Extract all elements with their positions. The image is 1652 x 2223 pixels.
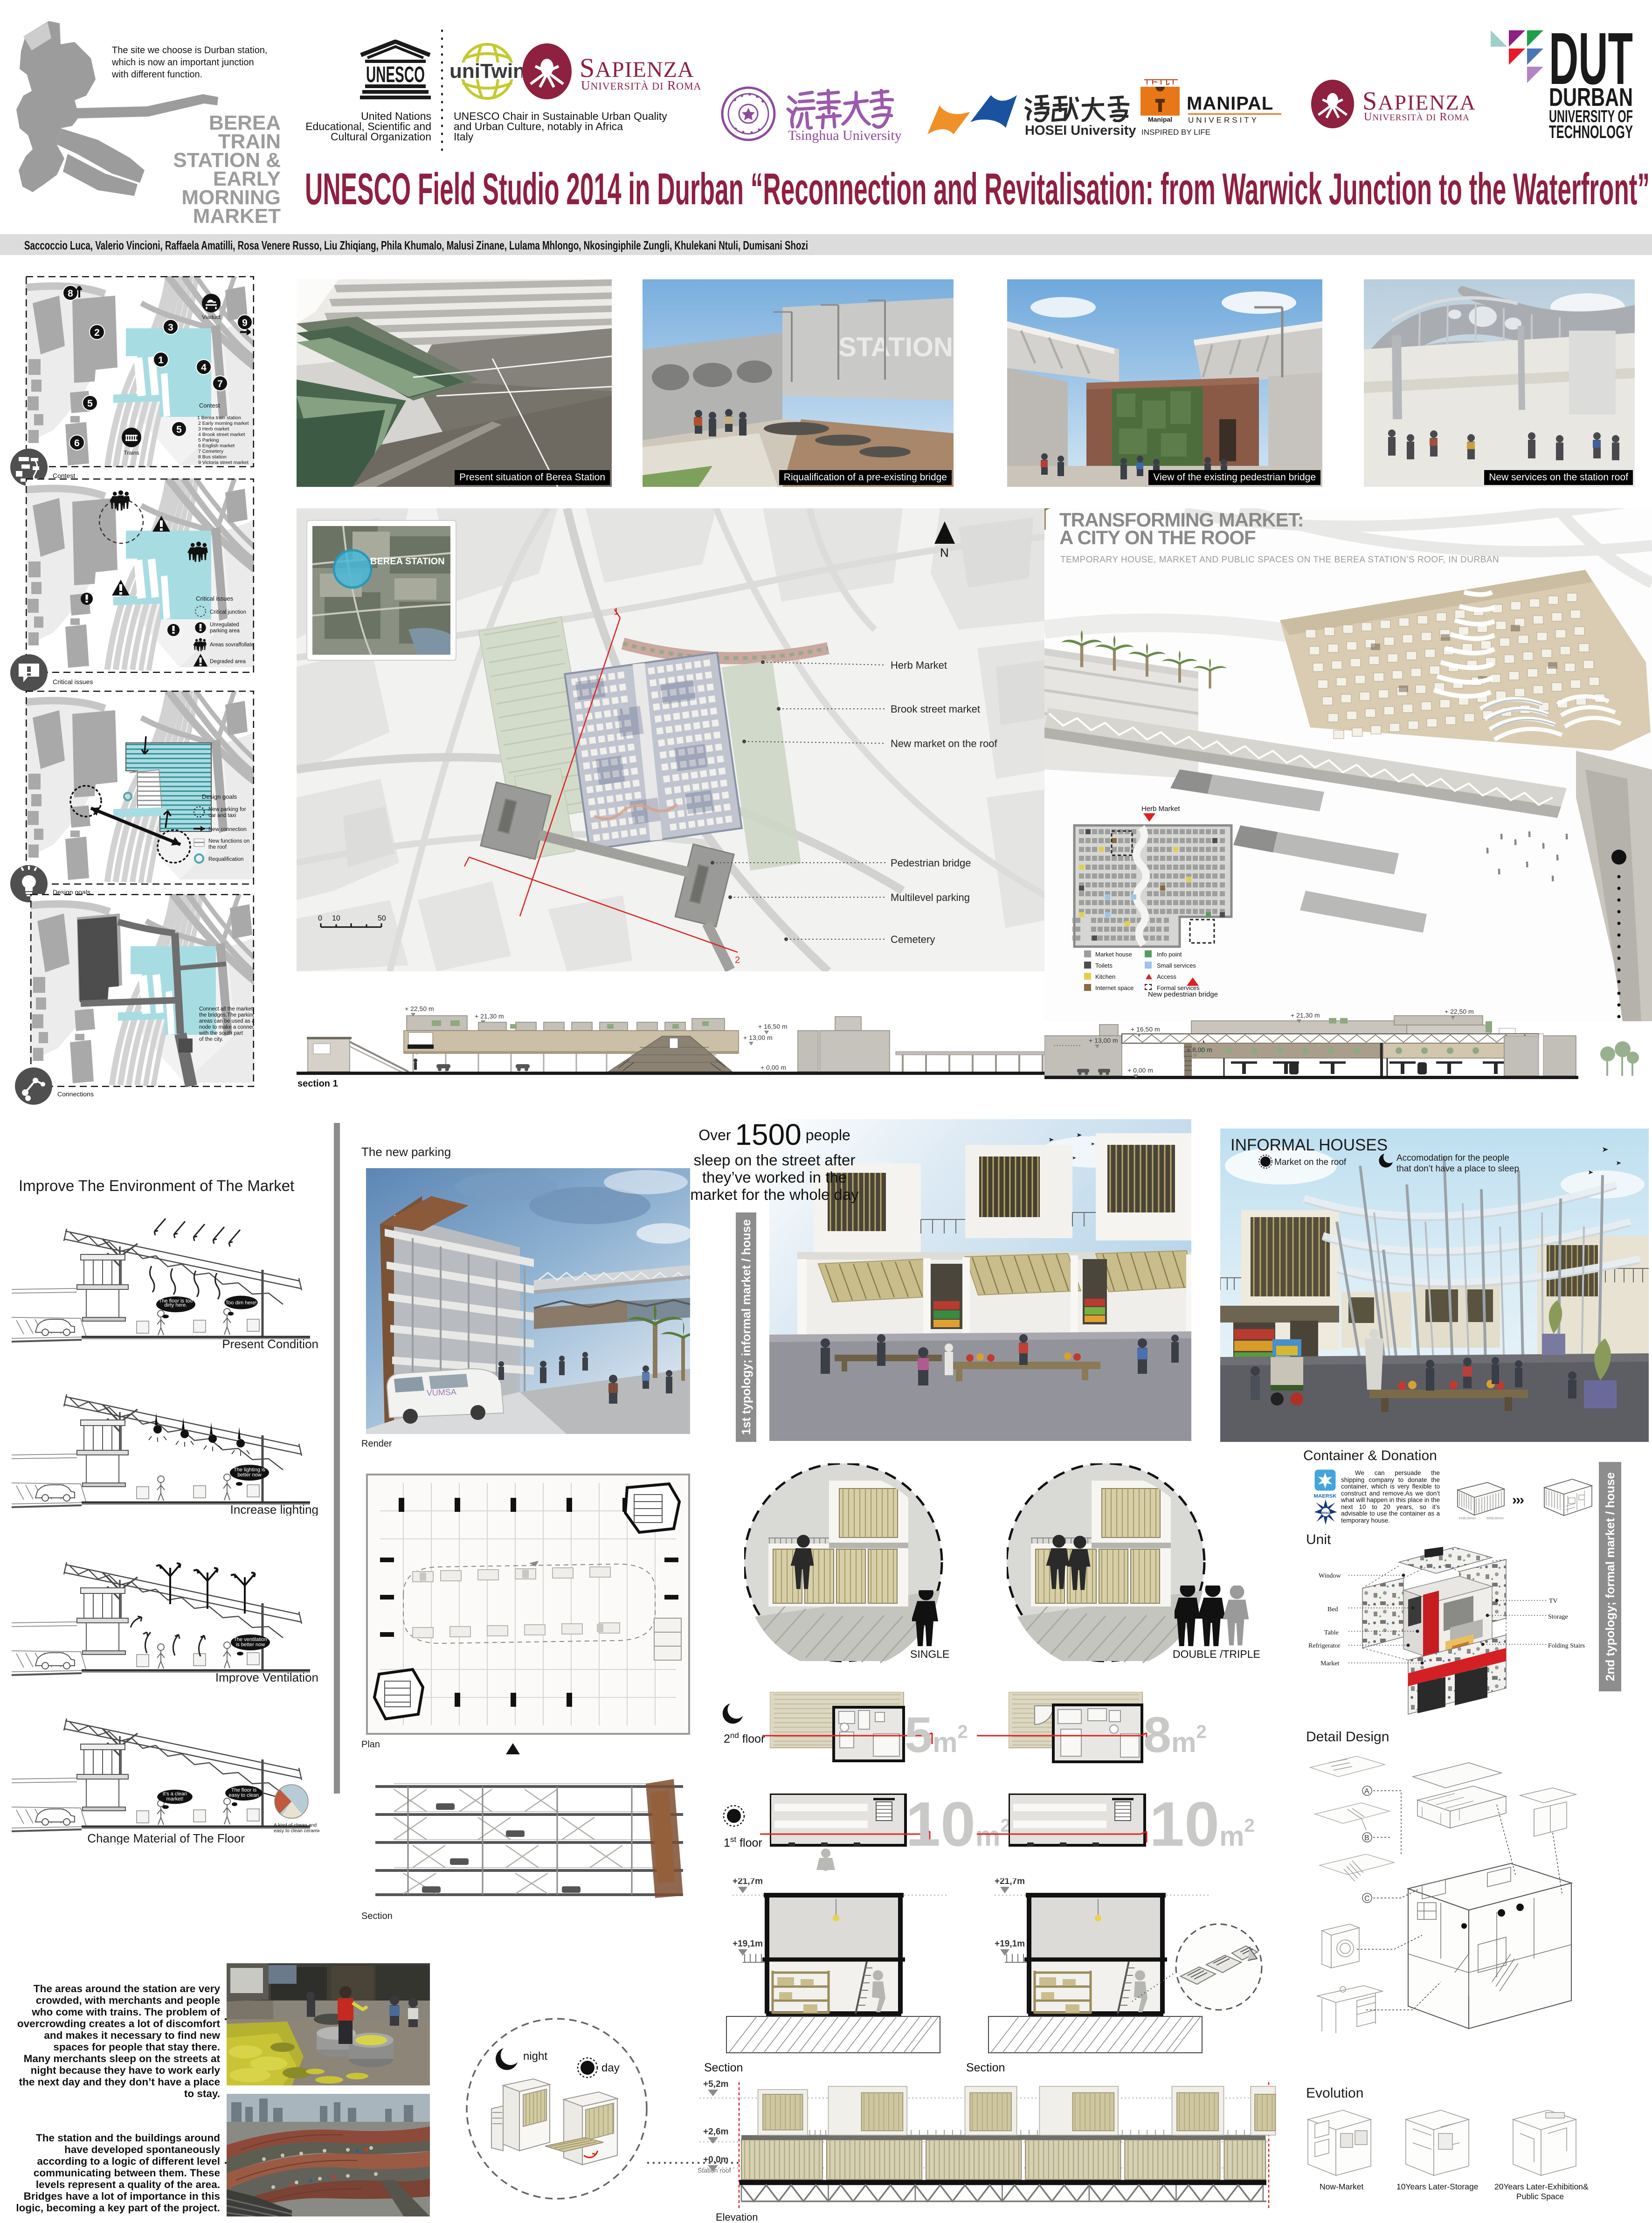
- svg-text:+ 16,50 m: + 16,50 m: [758, 1023, 788, 1030]
- svg-text:section 1: section 1: [297, 1079, 338, 1089]
- svg-text:MAERSK: MAERSK: [1314, 1494, 1336, 1499]
- svg-text:Contest: Contest: [199, 402, 220, 409]
- svg-text:parking area: parking area: [210, 628, 240, 634]
- svg-text:Improve Ventilation: Improve Ventilation: [215, 1670, 318, 1683]
- svg-text:New functions on: New functions on: [208, 838, 249, 844]
- svg-text:3: 3: [168, 322, 173, 333]
- svg-text:Present Condition: Present Condition: [222, 1337, 318, 1350]
- svg-text:+2,6m: +2,6m: [703, 2127, 728, 2137]
- svg-text:9 Victoria street market: 9 Victoria street market: [198, 460, 249, 465]
- svg-text:Degraded area: Degraded area: [210, 659, 246, 665]
- svg-text:2: 2: [735, 955, 740, 965]
- svg-text:BEREA STATION: BEREA STATION: [370, 556, 445, 567]
- svg-text:7 Cemetery: 7 Cemetery: [198, 449, 224, 454]
- svg-text:Trains: Trains: [124, 450, 139, 456]
- svg-text:Multilevel parking: Multilevel parking: [891, 892, 970, 903]
- svg-text:+ 0,00 m: + 0,00 m: [760, 1064, 786, 1071]
- svg-text:market!: market!: [166, 1796, 184, 1802]
- svg-text:easy to clean ceramic.: easy to clean ceramic.: [274, 1828, 319, 1834]
- svg-text:+ 8,00 m: + 8,00 m: [1187, 1046, 1212, 1053]
- svg-text:VUMSA: VUMSA: [426, 1387, 456, 1398]
- svg-text:Unregulated: Unregulated: [210, 622, 239, 628]
- svg-text:New market on the roof: New market on the roof: [891, 738, 998, 749]
- svg-text:UNESCO Field Studio 2014 in Du: UNESCO Field Studio 2014 in Durban “Reco…: [305, 164, 1650, 214]
- svg-text:1: 1: [158, 355, 164, 366]
- svg-text:5: 5: [87, 398, 93, 409]
- svg-text:20Years Later-Exhibition&: 20Years Later-Exhibition&: [1494, 2182, 1589, 2191]
- svg-text:New parking for: New parking for: [208, 807, 246, 812]
- svg-text:50: 50: [378, 914, 386, 922]
- svg-text:5 Parking: 5 Parking: [198, 437, 219, 443]
- svg-text:8: 8: [68, 288, 73, 299]
- svg-text:10Years Later-Storage: 10Years Later-Storage: [1396, 2182, 1478, 2191]
- svg-text:0: 0: [318, 914, 322, 922]
- svg-text:Viaduct: Viaduct: [202, 314, 221, 320]
- svg-text:of the city.: of the city.: [199, 1037, 223, 1042]
- svg-text:10: 10: [332, 914, 340, 922]
- svg-text:Now-Market: Now-Market: [1320, 2182, 1363, 2191]
- svg-text:Cemetery: Cemetery: [891, 934, 935, 945]
- svg-text:3 Herb market: 3 Herb market: [198, 426, 229, 432]
- svg-text:2 Early morning market: 2 Early morning market: [198, 421, 249, 426]
- svg-text:Connect all the markets with: Connect all the markets with: [199, 1006, 254, 1012]
- svg-text:Critical issues: Critical issues: [196, 595, 234, 602]
- svg-text:TECHNOLOGY: TECHNOLOGY: [1549, 122, 1633, 140]
- svg-text:+ 13,00 m: + 13,00 m: [743, 1034, 773, 1041]
- svg-text:Pedestrian bridge: Pedestrian bridge: [891, 857, 971, 869]
- svg-text:2: 2: [94, 327, 100, 338]
- svg-text:Public Space: Public Space: [1516, 2192, 1564, 2201]
- svg-text:the bridges.The parking: the bridges.The parking: [199, 1012, 254, 1018]
- svg-text:node to make a connection: node to make a connection: [199, 1025, 254, 1030]
- svg-text:Manipal: Manipal: [1148, 116, 1172, 123]
- svg-text:with the south part: with the south part: [199, 1031, 243, 1036]
- svg-text:8 Bus station: 8 Bus station: [198, 454, 227, 460]
- svg-text:6 English market: 6 English market: [198, 443, 235, 449]
- svg-text:Increase lighting: Increase lighting: [230, 1503, 318, 1516]
- svg-text:+ 22,50 m: + 22,50 m: [1445, 1008, 1474, 1015]
- svg-text:Saccoccio Luca, Valerio Vincio: Saccoccio Luca, Valerio Vincioni, Raffae…: [24, 238, 808, 252]
- svg-text:Design goals: Design goals: [202, 793, 237, 800]
- svg-text:+ 13,00 m: + 13,00 m: [1089, 1037, 1118, 1044]
- svg-text:the roof: the roof: [208, 845, 227, 850]
- svg-text:+ 21,30 m: + 21,30 m: [475, 1012, 504, 1020]
- svg-text:1 Berea train station: 1 Berea train station: [197, 415, 241, 421]
- svg-text:+5,2m: +5,2m: [703, 2079, 728, 2089]
- svg-text:6058,00mm: 6058,00mm: [1486, 1517, 1504, 1520]
- svg-text:+ 0,00 m: + 0,00 m: [1127, 1066, 1153, 1074]
- svg-text:Change Material of The Floor: Change Material of The Floor: [87, 1831, 245, 1844]
- svg-text:Critical junction: Critical junction: [210, 609, 246, 615]
- svg-text:A kind of cheap and: A kind of cheap and: [274, 1822, 317, 1828]
- svg-text:+ 21,30 m: + 21,30 m: [1291, 1011, 1320, 1019]
- svg-text:4: 4: [201, 362, 207, 373]
- svg-text:N: N: [940, 546, 949, 560]
- svg-text:New connection: New connection: [208, 827, 247, 832]
- svg-text:C: C: [1364, 1895, 1370, 1903]
- svg-text:Requalification: Requalification: [208, 857, 243, 862]
- svg-text:2438,00mm: 2438,00mm: [1458, 1517, 1476, 1520]
- svg-text:is better now: is better now: [236, 1642, 265, 1648]
- svg-text:4 Brook street market: 4 Brook street market: [198, 432, 245, 437]
- svg-text:UNESCO: UNESCO: [366, 62, 425, 87]
- svg-text:5: 5: [176, 424, 182, 435]
- svg-text:Areas sovraffollate: Areas sovraffollate: [210, 642, 254, 648]
- svg-text:better now: better now: [237, 1472, 261, 1478]
- svg-text:Herb Market: Herb Market: [891, 659, 947, 671]
- svg-text:uniTwin: uniTwin: [449, 60, 522, 83]
- svg-text:msc: msc: [1322, 1510, 1330, 1515]
- svg-text:1: 1: [614, 607, 619, 617]
- svg-text:Too dim here!: Too dim here!: [226, 1300, 257, 1306]
- svg-text:9: 9: [242, 318, 248, 328]
- svg-text:day: day: [601, 2062, 620, 2074]
- svg-text:6: 6: [74, 438, 80, 449]
- svg-text:A: A: [1364, 1787, 1369, 1795]
- svg-text:areas can be used as a: areas can be used as a: [199, 1018, 254, 1024]
- svg-text:STATION: STATION: [838, 332, 953, 362]
- svg-text:+ 22,50 m: + 22,50 m: [405, 1005, 434, 1012]
- svg-text:+ 16,50 m: + 16,50 m: [1131, 1025, 1160, 1033]
- svg-text:B: B: [1364, 1834, 1369, 1842]
- svg-text:Brook street market: Brook street market: [891, 703, 980, 715]
- svg-text:easy to clean: easy to clean: [229, 1793, 259, 1798]
- svg-text:night: night: [523, 2050, 547, 2063]
- svg-text:dirty here.: dirty here.: [165, 1302, 187, 1308]
- svg-text:car and taxi: car and taxi: [208, 813, 236, 818]
- svg-text:7: 7: [217, 379, 223, 389]
